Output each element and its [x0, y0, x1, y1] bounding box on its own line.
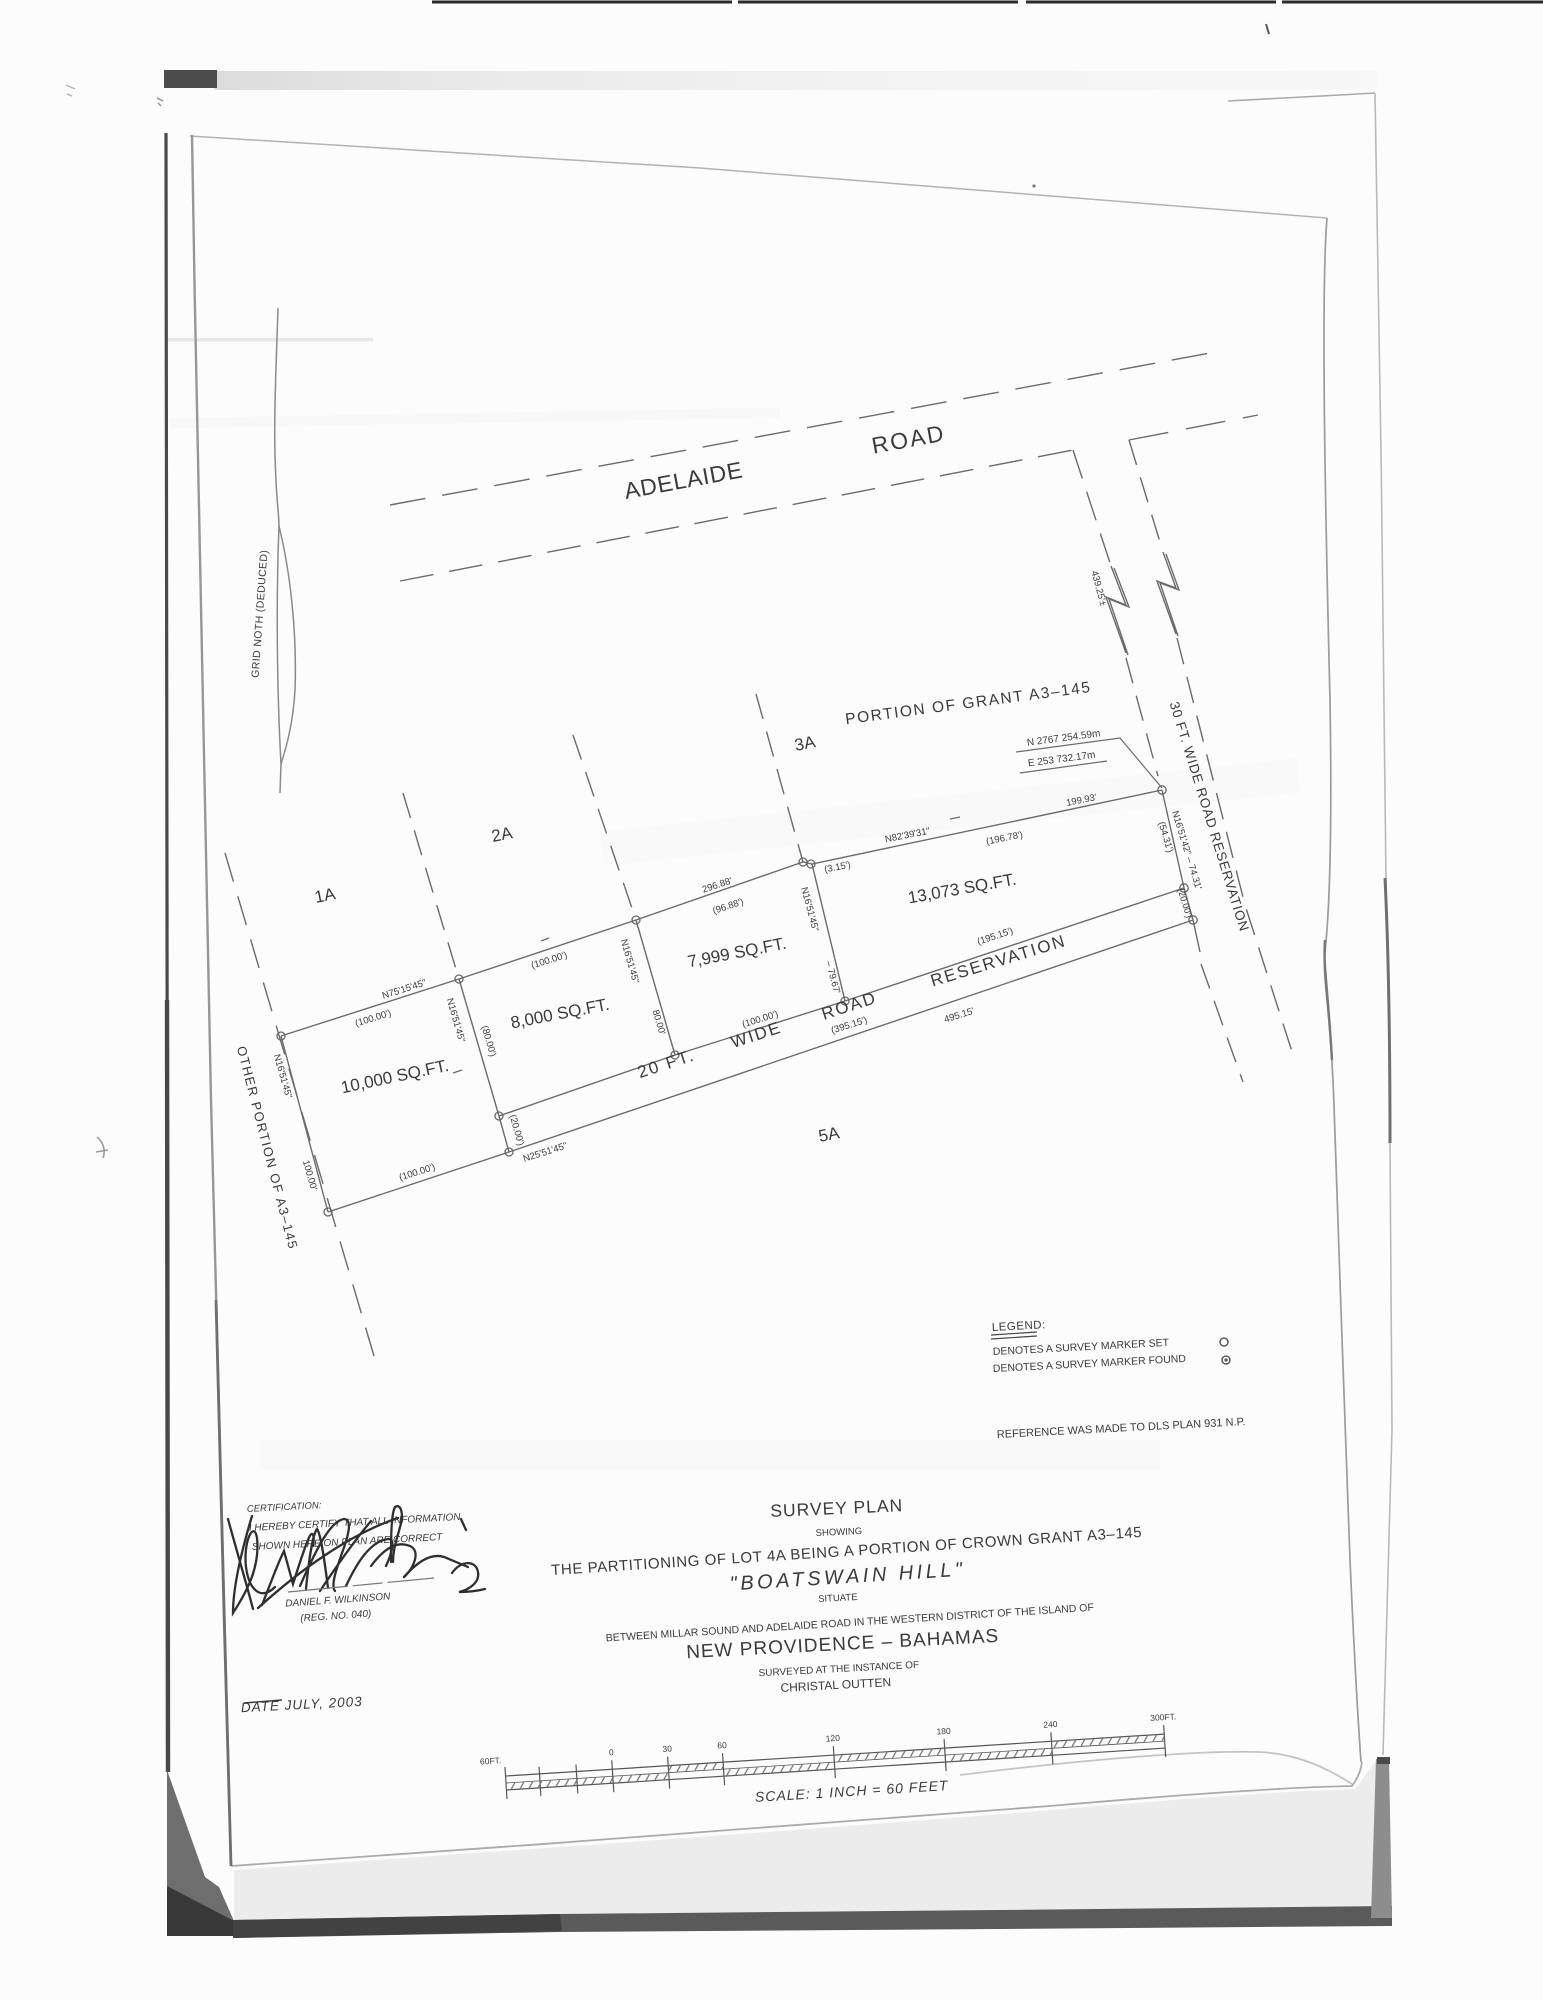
svg-text:80.00': 80.00': [650, 1008, 668, 1036]
svg-text:N16'51'45": N16'51'45": [444, 997, 467, 1044]
svg-text:(195.15'): (195.15'): [976, 926, 1015, 948]
svg-text:20 FT.: 20 FT.: [635, 1046, 697, 1082]
svg-text:3A: 3A: [793, 732, 818, 755]
svg-text:10,000 SQ.FT.: 10,000 SQ.FT.: [339, 1056, 450, 1097]
svg-text:120: 120: [825, 1733, 840, 1744]
svg-text:GRID NOTH (DEDUCED): GRID NOTH (DEDUCED): [250, 549, 271, 678]
svg-text:DANIEL F. WILKINSON: DANIEL F. WILKINSON: [285, 1591, 392, 1609]
svg-text:N16'51'45": N16'51'45": [618, 938, 641, 985]
svg-text:PORTION OF GRANT A3–145: PORTION OF GRANT A3–145: [844, 679, 1092, 728]
svg-text:SURVEY PLAN: SURVEY PLAN: [770, 1495, 904, 1521]
svg-text:2A: 2A: [490, 823, 515, 846]
svg-text:DATE JULY, 2003: DATE JULY, 2003: [241, 1694, 363, 1715]
svg-text:(20.00'): (20.00'): [1176, 887, 1194, 919]
svg-text:N16'51'45": N16'51'45": [798, 886, 820, 933]
svg-text:5A: 5A: [817, 1123, 842, 1146]
svg-text:8,000 SQ.FT.: 8,000 SQ.FT.: [509, 995, 611, 1033]
svg-text:296.88': 296.88': [701, 876, 734, 896]
svg-text:N25'51'45": N25'51'45": [522, 1141, 569, 1165]
svg-text:I HEREBY CERTIFY THAT ALL INFO: I HEREBY CERTIFY THAT ALL INFORMATION: [249, 1512, 462, 1534]
svg-text:100.00': 100.00': [300, 1159, 319, 1192]
svg-text:180: 180: [936, 1726, 951, 1737]
svg-text:(80.00'): (80.00'): [479, 1024, 498, 1058]
svg-text:E 253 732.17m: E 253 732.17m: [1027, 750, 1096, 770]
svg-text:439.25'±: 439.25'±: [1088, 569, 1108, 607]
svg-text:300FT.: 300FT.: [1150, 1711, 1177, 1723]
svg-text:SCALE: 1 INCH = 60 FEET: SCALE: 1 INCH = 60 FEET: [754, 1777, 949, 1805]
svg-text:N75'15'45": N75'15'45": [381, 978, 428, 1002]
svg-text:(REG. NO. 040): (REG. NO. 040): [300, 1609, 372, 1625]
svg-text:ROAD: ROAD: [870, 420, 948, 459]
svg-text:ROAD: ROAD: [819, 988, 879, 1024]
svg-text:CERTIFICATION:: CERTIFICATION:: [247, 1500, 322, 1515]
svg-text:0: 0: [609, 1747, 615, 1757]
svg-text:ADELAIDE: ADELAIDE: [622, 456, 745, 503]
svg-text:1A: 1A: [313, 884, 338, 907]
svg-text:13,073 SQ.FT.: 13,073 SQ.FT.: [906, 870, 1017, 908]
svg-text:(20.00'): (20.00'): [507, 1113, 526, 1147]
svg-text:(96.88'): (96.88'): [711, 896, 745, 916]
svg-text:CHRISTAL OUTTEN: CHRISTAL OUTTEN: [780, 1675, 891, 1695]
svg-text:REFERENCE WAS MADE TO DLS PLAN: REFERENCE WAS MADE TO DLS PLAN 931 N.P.: [997, 1416, 1246, 1441]
svg-text:7,999 SQ.FT.: 7,999 SQ.FT.: [686, 934, 788, 972]
svg-text:(3.15'): (3.15'): [823, 860, 851, 876]
svg-text:(196.78'): (196.78'): [985, 830, 1024, 848]
svg-text:495.15': 495.15': [943, 1006, 976, 1026]
svg-text:(100.00'): (100.00'): [398, 1162, 437, 1184]
svg-text:SURVEYED AT THE INSTANCE OF: SURVEYED AT THE INSTANCE OF: [758, 1660, 919, 1679]
svg-text:30: 30: [662, 1743, 672, 1754]
svg-text:SITUATE: SITUATE: [818, 1592, 858, 1605]
svg-text:60FT.: 60FT.: [480, 1755, 502, 1766]
svg-text:SHOWING: SHOWING: [815, 1526, 862, 1539]
svg-text:60: 60: [717, 1740, 727, 1751]
svg-text:240: 240: [1043, 1719, 1058, 1730]
svg-text:LEGEND:: LEGEND:: [992, 1319, 1047, 1334]
